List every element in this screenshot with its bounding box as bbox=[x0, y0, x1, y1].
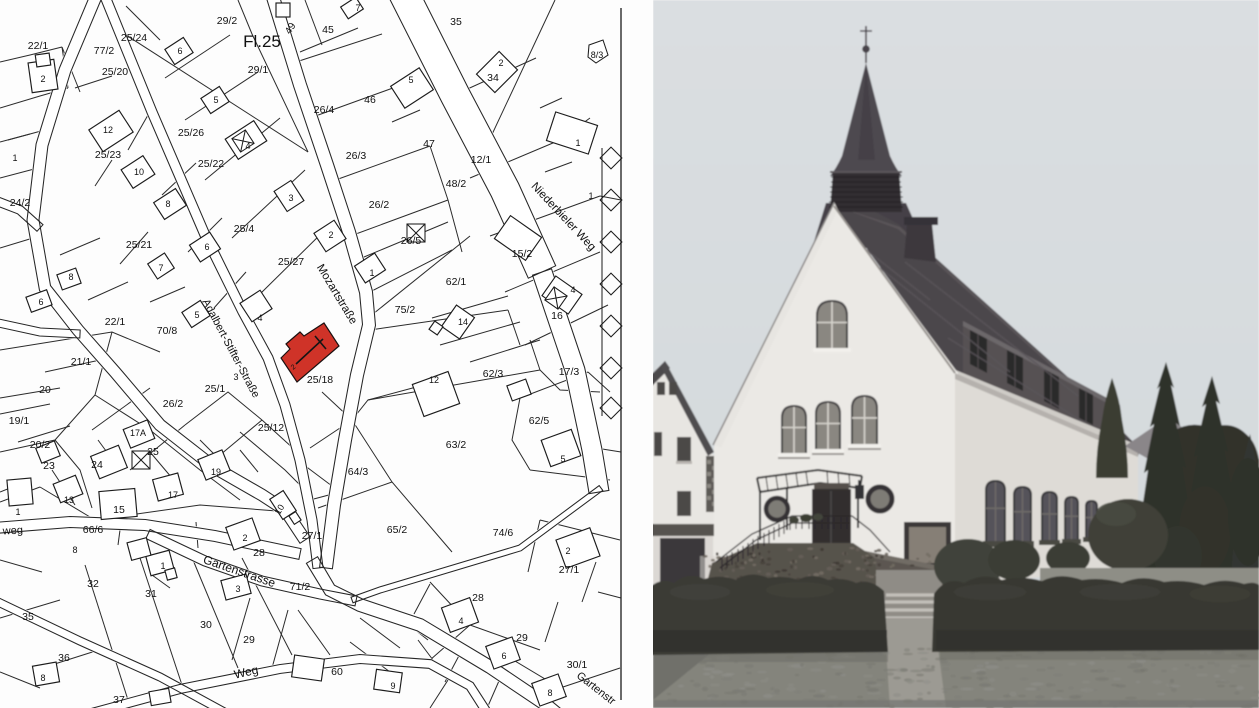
svg-text:7: 7 bbox=[355, 3, 360, 13]
svg-text:2: 2 bbox=[242, 533, 247, 543]
svg-text:5: 5 bbox=[213, 95, 218, 105]
svg-text:66/6: 66/6 bbox=[83, 524, 104, 536]
svg-text:29: 29 bbox=[243, 634, 255, 646]
svg-text:2: 2 bbox=[498, 58, 503, 68]
svg-text:26/3: 26/3 bbox=[346, 150, 367, 162]
svg-text:21/1: 21/1 bbox=[71, 356, 92, 368]
svg-text:30: 30 bbox=[200, 619, 212, 631]
svg-text:19/1: 19/1 bbox=[9, 415, 30, 427]
svg-text:25/27: 25/27 bbox=[278, 256, 304, 268]
svg-text:62/1: 62/1 bbox=[446, 276, 467, 288]
svg-text:17A: 17A bbox=[130, 428, 146, 438]
svg-text:24: 24 bbox=[91, 459, 103, 471]
svg-text:1: 1 bbox=[15, 507, 20, 517]
svg-text:3: 3 bbox=[288, 193, 293, 203]
svg-text:65/2: 65/2 bbox=[387, 524, 408, 536]
svg-text:26/2: 26/2 bbox=[163, 398, 184, 410]
svg-text:27/1: 27/1 bbox=[302, 530, 323, 542]
svg-text:19: 19 bbox=[211, 467, 221, 477]
svg-text:35: 35 bbox=[22, 611, 34, 623]
svg-text:23: 23 bbox=[43, 460, 55, 472]
svg-text:17: 17 bbox=[168, 490, 178, 500]
svg-text:29: 29 bbox=[516, 632, 528, 644]
svg-text:8: 8 bbox=[547, 688, 552, 698]
svg-text:4: 4 bbox=[257, 313, 262, 323]
svg-text:25/23: 25/23 bbox=[95, 149, 121, 161]
svg-text:1: 1 bbox=[12, 153, 17, 163]
svg-text:26/4: 26/4 bbox=[314, 104, 335, 116]
svg-text:weg: weg bbox=[1, 524, 23, 537]
svg-text:4: 4 bbox=[245, 141, 250, 151]
svg-text:16: 16 bbox=[551, 310, 563, 322]
svg-text:35: 35 bbox=[450, 16, 462, 28]
svg-text:12/1: 12/1 bbox=[471, 154, 492, 166]
svg-text:20: 20 bbox=[39, 384, 51, 396]
svg-text:29/2: 29/2 bbox=[217, 15, 238, 27]
svg-text:6: 6 bbox=[38, 297, 43, 307]
svg-text:6: 6 bbox=[204, 242, 209, 252]
svg-text:1: 1 bbox=[369, 268, 374, 278]
svg-text:25/4: 25/4 bbox=[234, 223, 255, 235]
svg-text:32: 32 bbox=[87, 578, 99, 590]
svg-text:63/2: 63/2 bbox=[446, 439, 467, 451]
svg-text:26/2: 26/2 bbox=[369, 199, 390, 211]
svg-text:2: 2 bbox=[40, 74, 45, 84]
svg-text:22/1: 22/1 bbox=[28, 40, 49, 52]
svg-text:29/1: 29/1 bbox=[248, 64, 269, 76]
svg-text:8: 8 bbox=[72, 545, 77, 555]
svg-text:70/8: 70/8 bbox=[157, 325, 178, 337]
svg-text:20/2: 20/2 bbox=[30, 439, 51, 451]
svg-text:15: 15 bbox=[113, 504, 125, 516]
svg-text:25/1: 25/1 bbox=[205, 383, 226, 395]
svg-text:5: 5 bbox=[408, 75, 413, 85]
svg-text:30/1: 30/1 bbox=[567, 659, 588, 671]
svg-text:64/3: 64/3 bbox=[348, 466, 369, 478]
svg-text:62/5: 62/5 bbox=[529, 415, 550, 427]
svg-text:26/5: 26/5 bbox=[401, 235, 422, 247]
svg-text:2: 2 bbox=[565, 546, 570, 556]
svg-text:60: 60 bbox=[331, 666, 343, 678]
svg-text:6: 6 bbox=[501, 651, 506, 661]
svg-text:17/3: 17/3 bbox=[559, 366, 580, 378]
svg-text:22/1: 22/1 bbox=[105, 316, 126, 328]
svg-text:24/2: 24/2 bbox=[10, 197, 31, 209]
svg-text:8: 8 bbox=[68, 272, 73, 282]
svg-text:Fl.25: Fl.25 bbox=[243, 32, 281, 51]
svg-text:4: 4 bbox=[458, 616, 463, 626]
svg-text:2: 2 bbox=[328, 230, 333, 240]
svg-text:12: 12 bbox=[429, 375, 439, 385]
svg-text:1: 1 bbox=[160, 561, 165, 571]
svg-text:15/2: 15/2 bbox=[512, 248, 533, 260]
svg-text:25/12: 25/12 bbox=[258, 422, 284, 434]
svg-text:37: 37 bbox=[113, 694, 125, 706]
svg-text:1: 1 bbox=[575, 138, 580, 148]
svg-text:31: 31 bbox=[145, 588, 157, 600]
svg-text:8: 8 bbox=[165, 199, 170, 209]
svg-text:5: 5 bbox=[560, 454, 565, 464]
svg-text:10: 10 bbox=[134, 167, 144, 177]
svg-text:12: 12 bbox=[103, 125, 113, 135]
svg-text:25/20: 25/20 bbox=[102, 66, 128, 78]
svg-text:6: 6 bbox=[177, 46, 182, 56]
svg-text:25: 25 bbox=[147, 446, 159, 458]
svg-text:3: 3 bbox=[235, 584, 240, 594]
svg-text:25/24: 25/24 bbox=[121, 32, 147, 44]
svg-text:5: 5 bbox=[194, 310, 199, 320]
svg-text:9: 9 bbox=[390, 681, 395, 691]
svg-text:71/2: 71/2 bbox=[290, 581, 311, 593]
svg-text:13: 13 bbox=[64, 495, 74, 505]
svg-text:8/3: 8/3 bbox=[591, 50, 604, 60]
svg-text:47: 47 bbox=[423, 138, 435, 150]
svg-text:7: 7 bbox=[158, 263, 163, 273]
svg-text:74/6: 74/6 bbox=[493, 527, 514, 539]
svg-text:28: 28 bbox=[472, 592, 484, 604]
svg-text:25/18: 25/18 bbox=[307, 374, 333, 386]
svg-text:75/2: 75/2 bbox=[395, 304, 416, 316]
svg-text:8: 8 bbox=[40, 673, 45, 683]
svg-text:77/2: 77/2 bbox=[94, 45, 115, 57]
svg-text:62/3: 62/3 bbox=[483, 368, 504, 380]
svg-text:34: 34 bbox=[487, 72, 499, 84]
svg-text:27/1: 27/1 bbox=[559, 564, 580, 576]
svg-text:4: 4 bbox=[570, 285, 575, 295]
svg-text:46: 46 bbox=[364, 94, 376, 106]
svg-text:14: 14 bbox=[458, 317, 468, 327]
svg-text:28: 28 bbox=[253, 547, 265, 559]
svg-text:25/26: 25/26 bbox=[178, 127, 204, 139]
svg-text:1: 1 bbox=[588, 191, 593, 201]
svg-text:45: 45 bbox=[322, 24, 334, 36]
svg-text:25/22: 25/22 bbox=[198, 158, 224, 170]
svg-text:48/2: 48/2 bbox=[446, 178, 467, 190]
svg-text:36: 36 bbox=[58, 652, 70, 664]
svg-text:25/21: 25/21 bbox=[126, 239, 152, 251]
